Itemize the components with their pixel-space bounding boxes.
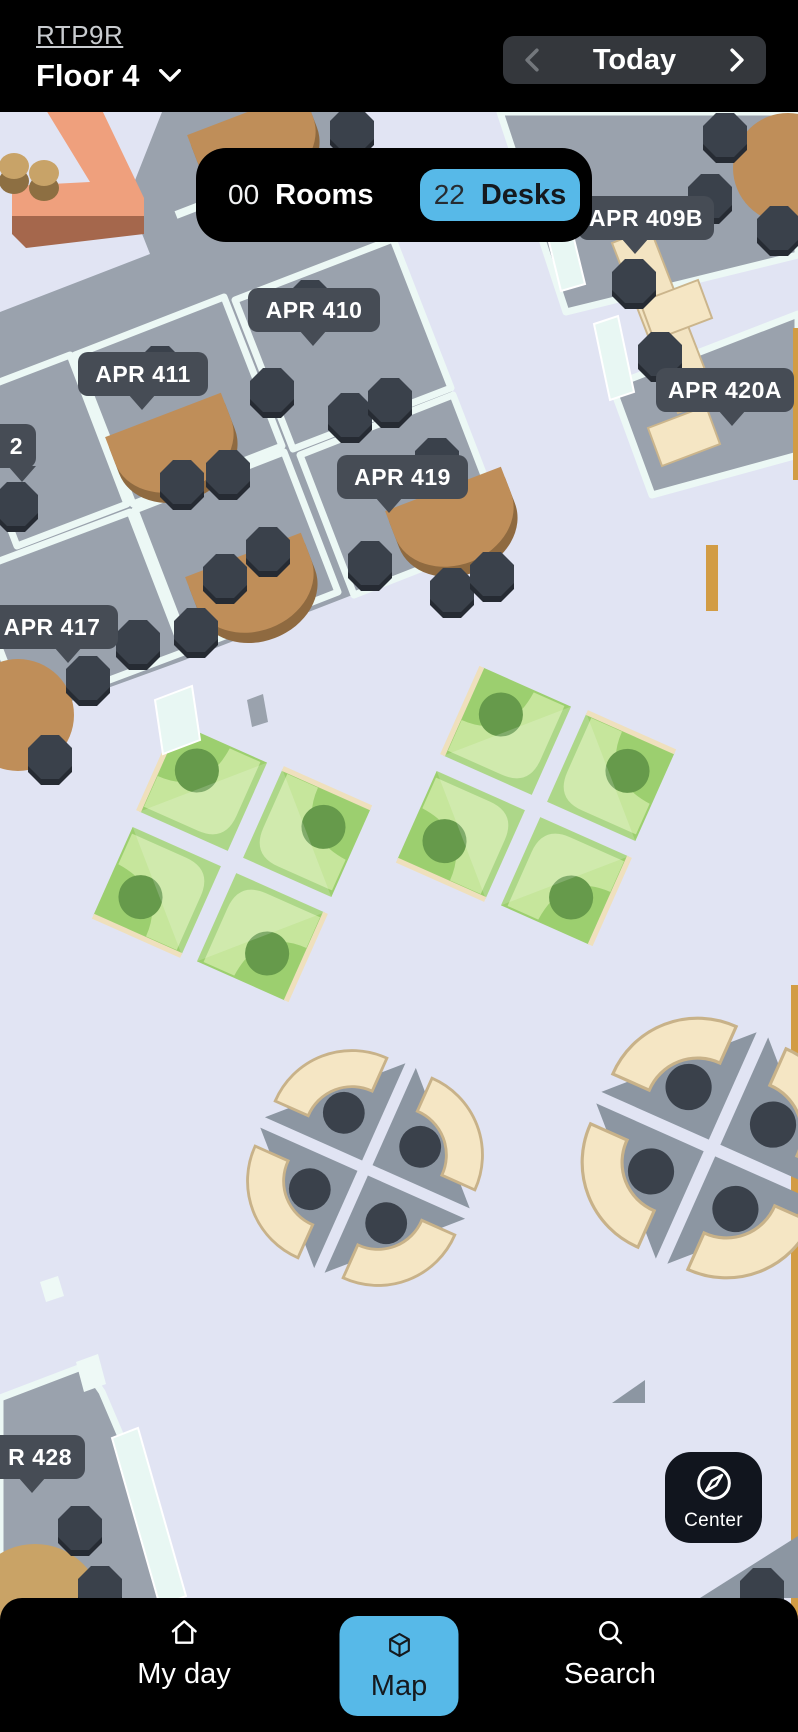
desks-count: 22 <box>434 179 465 211</box>
chevron-down-icon <box>159 69 181 83</box>
nav-label: Search <box>564 1658 656 1691</box>
rooms-count[interactable]: 00 <box>228 179 259 211</box>
room-label[interactable]: APR 419 <box>337 455 468 499</box>
room-label[interactable]: APR 417 <box>0 605 118 649</box>
floor-selector[interactable]: Floor 4 <box>36 58 181 94</box>
desks-filter-chip[interactable]: 22 Desks <box>420 169 580 221</box>
nav-item-search[interactable]: Search <box>564 1616 656 1691</box>
search-icon <box>594 1616 626 1648</box>
room-label[interactable]: R 428 <box>0 1435 85 1479</box>
date-picker: Today <box>503 36 766 84</box>
desks-label: Desks <box>481 179 566 212</box>
floor-name: Floor 4 <box>36 58 139 94</box>
bottom-navigation: My day Map Search <box>0 1598 798 1732</box>
center-button-label: Center <box>684 1510 743 1532</box>
room-label[interactable]: APR 420A <box>656 368 794 412</box>
nav-item-map[interactable]: Map <box>340 1616 459 1716</box>
availability-pill: 00 Rooms 22 Desks <box>196 148 592 242</box>
center-map-button[interactable]: Center <box>665 1452 762 1543</box>
nav-item-my-day[interactable]: My day <box>137 1616 230 1691</box>
cube-icon <box>383 1630 415 1662</box>
room-label[interactable]: APR 409B <box>578 196 714 240</box>
chevron-left-icon[interactable] <box>523 47 541 73</box>
home-icon <box>168 1616 200 1648</box>
room-label[interactable]: APR 411 <box>78 352 208 396</box>
header: RTP9R Floor 4 Today <box>0 0 798 112</box>
room-label[interactable]: 2 <box>0 424 36 468</box>
chevron-right-icon[interactable] <box>728 47 746 73</box>
nav-label: My day <box>137 1658 230 1691</box>
compass-icon <box>694 1463 734 1503</box>
building-link[interactable]: RTP9R <box>36 20 123 51</box>
today-button[interactable]: Today <box>593 44 676 77</box>
room-label[interactable]: APR 410 <box>248 288 380 332</box>
nav-label: Map <box>371 1670 427 1703</box>
rooms-label[interactable]: Rooms <box>275 179 373 212</box>
